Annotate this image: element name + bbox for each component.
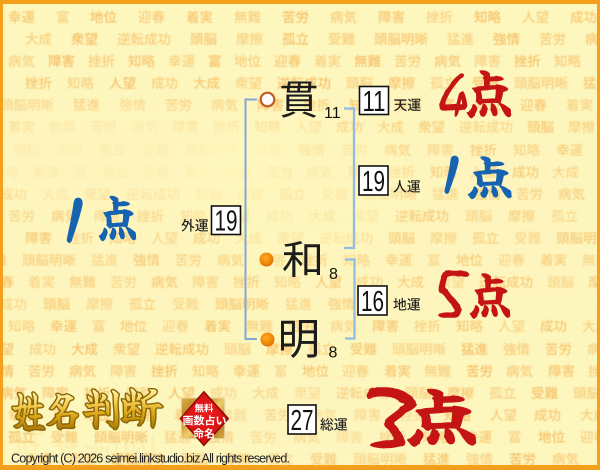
svg-text:16: 16 (361, 286, 384, 318)
svg-text:Copyright (C) 2026 seimei.link: Copyright (C) 2026 seimei.linkstudio.biz… (11, 452, 290, 466)
svg-text:27: 27 (291, 405, 314, 437)
svg-text:8: 8 (329, 266, 338, 283)
svg-text:11: 11 (363, 86, 386, 118)
svg-text:19: 19 (362, 166, 385, 198)
svg-text:11: 11 (324, 105, 341, 122)
svg-text:19: 19 (215, 206, 238, 238)
svg-text:8: 8 (329, 345, 338, 362)
